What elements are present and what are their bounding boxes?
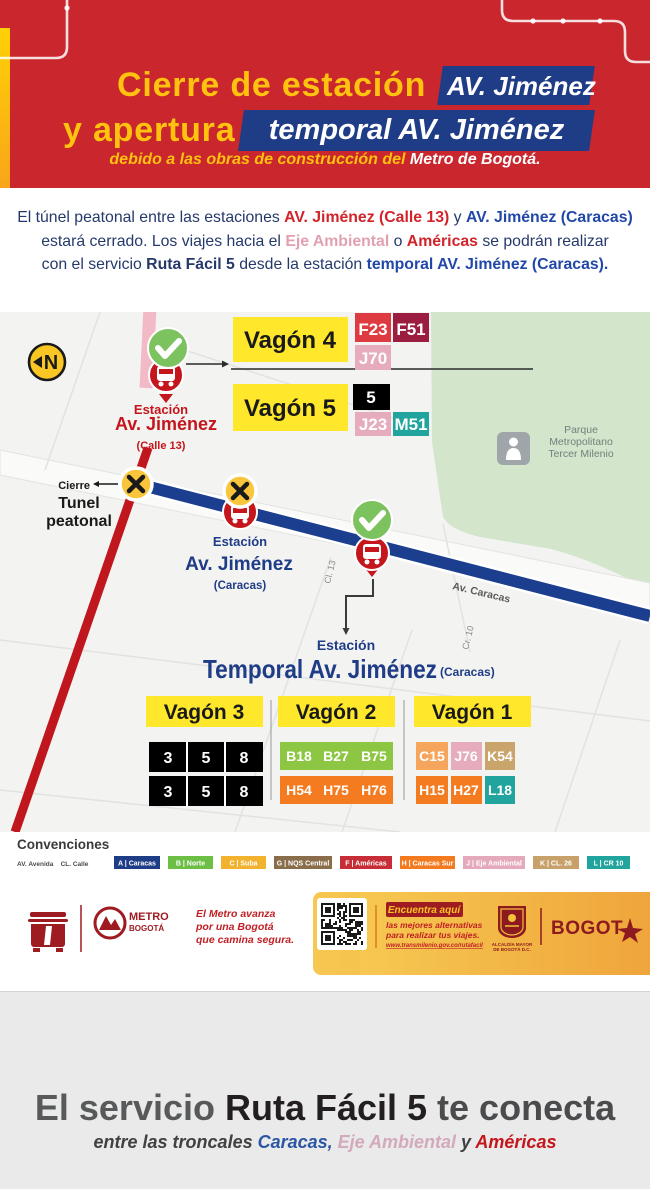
svg-text:(Caracas): (Caracas) [214,580,267,592]
svg-text:(Calle 13): (Calle 13) [137,440,186,452]
svg-text:Vagón 1: Vagón 1 [432,701,513,724]
svg-text:Av. Jiménez: Av. Jiménez [185,554,293,575]
svg-text:F23: F23 [358,320,387,339]
svg-text:que camina segura.: que camina segura. [196,934,294,946]
svg-text:ALCALDÍA MAYOR: ALCALDÍA MAYOR [492,940,533,947]
svg-text:5: 5 [202,750,211,767]
svg-text:K54: K54 [487,748,513,764]
svg-text:Tunel: Tunel [58,495,99,512]
svg-text:G | NQS Central: G | NQS Central [277,861,330,868]
svg-text:AV. Avenida CL. Calle: AV. Avenida CL. Calle [17,861,89,868]
svg-text:www.transmilenio.gov.co/rutafa: www.transmilenio.gov.co/rutafacil [386,943,483,949]
svg-text:3: 3 [164,784,173,801]
svg-text:BOGOTÁ: BOGOTÁ [129,924,164,933]
svg-text:B27: B27 [323,748,349,764]
svg-text:B18: B18 [286,748,312,764]
svg-text:A | Caracas: A | Caracas [118,861,156,868]
svg-text:J70: J70 [359,349,387,368]
svg-text:Tercer Milenio: Tercer Milenio [548,448,614,460]
svg-text:Estación: Estación [317,637,375,653]
svg-text:5: 5 [366,388,375,407]
svg-text:H76: H76 [361,782,387,798]
svg-text:J76: J76 [454,748,478,764]
svg-text:para realizar tus viajes.: para realizar tus viajes. [385,930,480,940]
svg-text:Vagón 4: Vagón 4 [244,327,337,354]
svg-text:H75: H75 [323,782,349,798]
svg-text:METRO: METRO [129,911,169,923]
svg-text:F | Américas: F | Américas [345,861,386,868]
svg-text:Av. Jiménez: Av. Jiménez [115,414,217,434]
svg-text:H27: H27 [453,782,479,798]
svg-text:H15: H15 [419,782,445,798]
svg-text:8: 8 [240,784,249,801]
svg-text:BOGOT: BOGOT [551,918,623,939]
svg-text:DE BOGOTÁ D.C.: DE BOGOTÁ D.C. [493,946,531,952]
svg-text:Vagón 2: Vagón 2 [296,701,377,724]
svg-text:8: 8 [240,750,249,767]
svg-text:Convenciones: Convenciones [17,837,109,852]
svg-text:El Metro avanza: El Metro avanza [196,908,276,920]
svg-text:Parque: Parque [564,424,598,436]
svg-text:5: 5 [202,784,211,801]
svg-text:H54: H54 [286,782,312,798]
svg-text:C | Suba: C | Suba [229,861,257,868]
svg-text:B75: B75 [361,748,387,764]
svg-text:Cierre: Cierre [58,480,90,492]
svg-text:(Caracas): (Caracas) [440,665,495,679]
svg-text:M51: M51 [394,415,427,434]
svg-text:las mejores alternativas: las mejores alternativas [386,920,483,930]
svg-text:Encuentra aquí: Encuentra aquí [388,905,461,916]
svg-text:N: N [44,352,58,374]
svg-text:H | Caracas Sur: H | Caracas Sur [402,861,454,868]
svg-text:J | Eje Ambiental: J | Eje Ambiental [466,861,522,868]
svg-text:B | Norte: B | Norte [176,861,205,868]
svg-text:Temporal Av. Jiménez: Temporal Av. Jiménez [203,654,437,684]
svg-text:3: 3 [164,750,173,767]
svg-text:peatonal: peatonal [46,513,112,530]
svg-text:C15: C15 [419,748,445,764]
svg-text:Metropolitano: Metropolitano [549,436,613,448]
svg-text:K | CL. 26: K | CL. 26 [540,861,572,868]
svg-text:Vagón 3: Vagón 3 [164,701,245,724]
svg-text:por una Bogotá: por una Bogotá [195,921,274,933]
svg-text:Estación: Estación [213,534,267,549]
svg-text:L18: L18 [488,782,512,798]
svg-text:Vagón 5: Vagón 5 [244,395,336,422]
svg-text:F51: F51 [396,320,425,339]
svg-text:J23: J23 [359,415,387,434]
svg-text:L | CR 10: L | CR 10 [594,861,624,868]
